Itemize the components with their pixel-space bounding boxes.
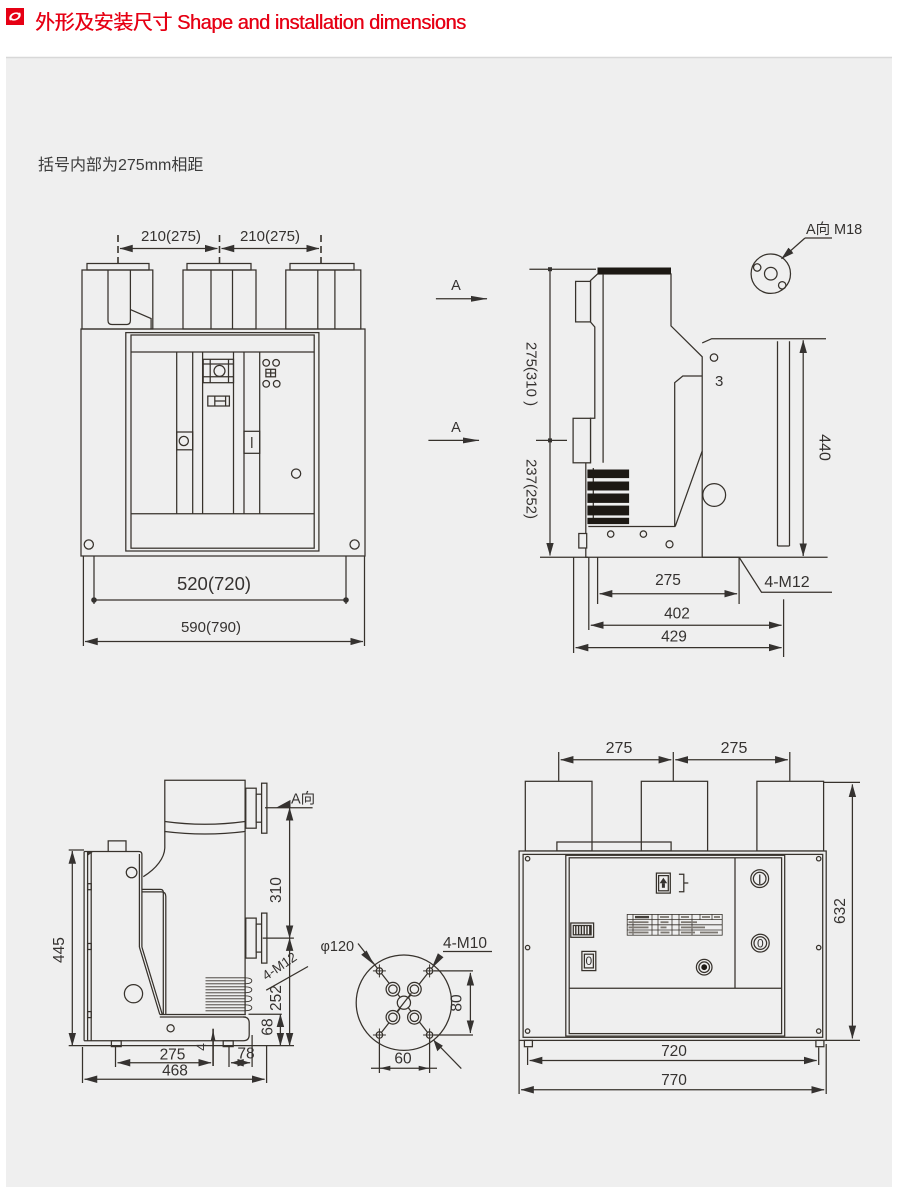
svg-text:80: 80 [449, 994, 466, 1012]
svg-text:440: 440 [816, 434, 833, 461]
svg-text:237(252): 237(252) [523, 459, 540, 519]
svg-text:402: 402 [664, 606, 690, 623]
svg-text:468: 468 [162, 1063, 188, 1080]
svg-text:210(275): 210(275) [240, 228, 300, 245]
svg-text:275: 275 [606, 740, 633, 757]
svg-text:A: A [451, 278, 461, 294]
svg-text:520(720): 520(720) [177, 573, 251, 594]
svg-text:3: 3 [715, 373, 723, 390]
svg-text:275: 275 [655, 572, 681, 589]
svg-text:60: 60 [394, 1051, 412, 1068]
svg-text:445: 445 [51, 937, 68, 963]
svg-text:429: 429 [661, 629, 687, 646]
svg-text:φ120: φ120 [321, 939, 355, 955]
svg-text:275: 275 [721, 740, 748, 757]
svg-text:A向: A向 [806, 221, 830, 238]
svg-text:4-M12: 4-M12 [764, 574, 809, 591]
svg-text:310: 310 [268, 877, 285, 903]
svg-text:770: 770 [661, 1072, 687, 1089]
svg-text:0: 0 [586, 954, 593, 968]
svg-text:68: 68 [260, 1018, 277, 1035]
svg-text:4-M10: 4-M10 [443, 935, 487, 952]
svg-text:720: 720 [661, 1043, 687, 1060]
svg-text:78: 78 [237, 1046, 254, 1063]
svg-text:0: 0 [757, 936, 764, 950]
svg-text:275(310 ): 275(310 ) [523, 342, 540, 406]
svg-text:4: 4 [193, 1043, 209, 1051]
svg-text:M18: M18 [834, 222, 862, 238]
svg-text:252: 252 [268, 985, 285, 1011]
svg-text:A向: A向 [291, 791, 315, 808]
svg-text:632: 632 [832, 898, 849, 924]
svg-text:A: A [451, 420, 461, 436]
svg-text:590(790): 590(790) [181, 619, 241, 636]
svg-text:275: 275 [160, 1047, 186, 1064]
svg-text:210(275): 210(275) [141, 228, 201, 245]
svg-text:I: I [758, 872, 762, 887]
